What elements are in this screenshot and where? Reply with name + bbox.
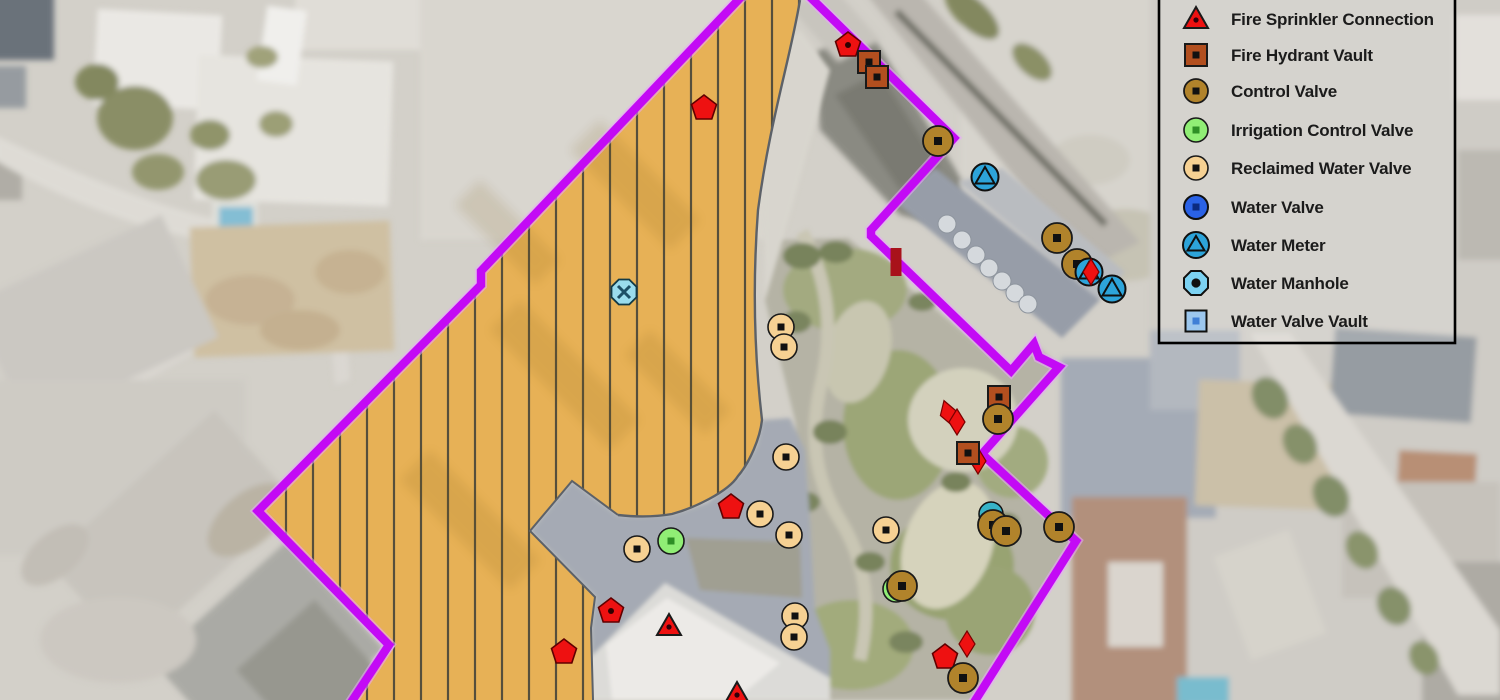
svg-text:Control Valve: Control Valve (1231, 82, 1337, 101)
svg-text:Water Valve: Water Valve (1231, 198, 1324, 217)
svg-text:Water Manhole: Water Manhole (1231, 274, 1349, 293)
svg-text:Reclaimed Water Valve: Reclaimed Water Valve (1231, 159, 1411, 178)
svg-text:Fire Sprinkler Connection: Fire Sprinkler Connection (1231, 10, 1434, 29)
svg-text:Water Meter: Water Meter (1231, 236, 1326, 255)
svg-text:Fire Hydrant Vault: Fire Hydrant Vault (1231, 46, 1373, 65)
svg-text:Water Valve Vault: Water Valve Vault (1231, 312, 1368, 331)
svg-text:Irrigation Control Valve: Irrigation Control Valve (1231, 121, 1413, 140)
